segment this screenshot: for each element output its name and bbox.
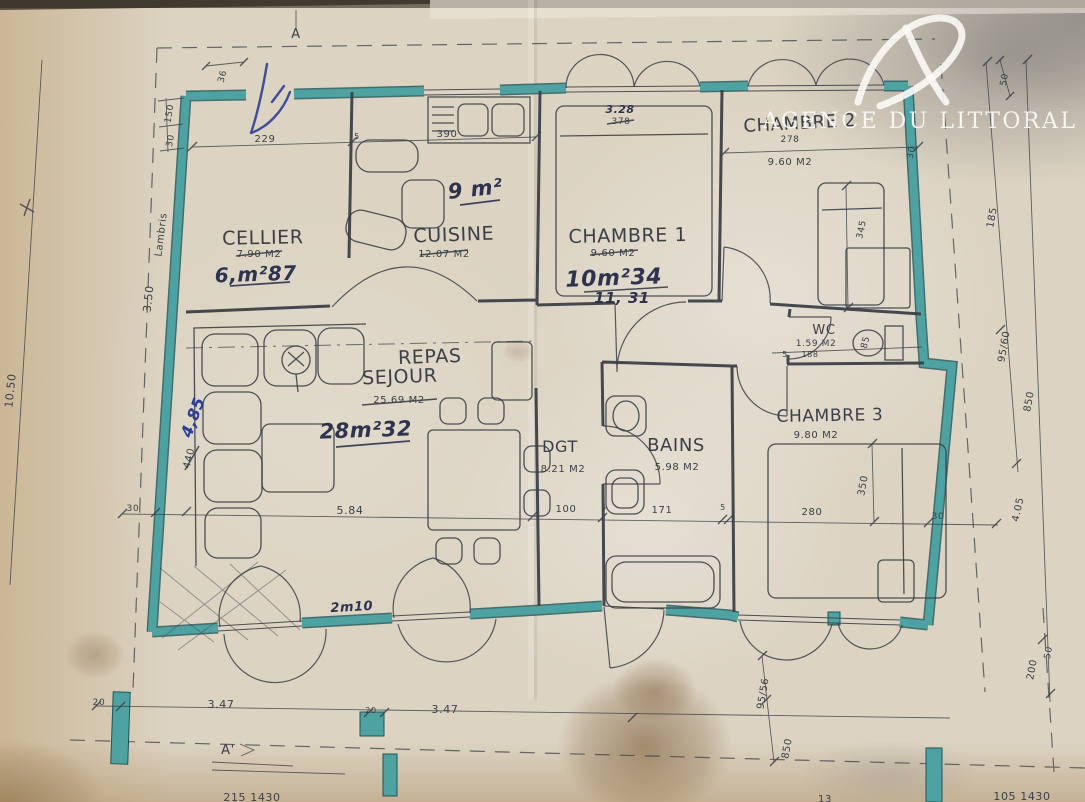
area-sejour-hand: 28m²32 — [319, 416, 412, 443]
area-chambre1-hand-alt: 11, 31 — [594, 289, 650, 307]
dim-2m10-hand: 2m10 — [330, 599, 373, 616]
dim-584: 5.84 — [337, 504, 364, 517]
dim-100: 100 — [556, 504, 577, 515]
area-wc: 1.59 M2 — [796, 339, 837, 349]
room-label-chambre3: CHAMBRE 3 — [776, 405, 883, 427]
post — [360, 712, 384, 736]
dim-229: 229 — [255, 134, 276, 145]
dim-280: 280 — [802, 507, 823, 518]
room-label-chambre1: CHAMBRE 1 — [568, 224, 687, 248]
section-marker-top: A — [291, 27, 301, 42]
area-chambre1-printed: 9.60 M2 — [591, 248, 636, 259]
area-chambre3: 9.80 M2 — [794, 430, 839, 441]
post — [926, 748, 942, 802]
dim-5-wc: 5 — [782, 350, 788, 359]
dim-wc-width: 188 — [801, 350, 818, 359]
area-dgt: 8.21 M2 — [541, 464, 586, 475]
dim-5-top: 5 — [354, 132, 360, 141]
room-label-sejour: SEJOUR — [362, 365, 438, 390]
room-label-cellier: CELLIER — [222, 226, 304, 249]
dim-5-a: 5 — [601, 503, 607, 512]
fragment-2: 105 1430 — [993, 790, 1050, 802]
room-label-dgt: DGT — [542, 437, 578, 456]
fragment-3: 13 — [818, 794, 832, 802]
dim-5-b: 5 — [720, 503, 726, 512]
dim-20-b: 20 — [365, 706, 376, 715]
room-label-wc: WC — [812, 323, 835, 338]
dim-390: 390 — [437, 129, 458, 140]
post — [383, 754, 397, 796]
dim-chambre2-width: 278 — [781, 135, 800, 145]
dim-347-b: 3.47 — [432, 703, 459, 716]
area-sejour-printed: 25.69 M2 — [373, 395, 425, 406]
room-label-cuisine: CUISINE — [413, 223, 495, 248]
dim-171: 171 — [652, 505, 673, 516]
dim-20-a: 20 — [93, 698, 106, 708]
area-cellier-hand: 6,m²87 — [214, 261, 297, 288]
area-chambre2: 9.60 M2 — [768, 157, 813, 168]
agency-name: AGENCE DU LITTORAL — [762, 109, 1078, 134]
dim-30-midleft: 30 — [127, 504, 140, 514]
area-cuisine-printed: 12.07 M2 — [418, 249, 470, 260]
dim-347-a: 3.47 — [208, 698, 235, 711]
post — [111, 692, 131, 765]
room-label-bains: BAINS — [647, 435, 705, 456]
area-cellier-printed: 7.90 M2 — [237, 249, 282, 260]
floor-plan-photo: CELLIER 7.90 M2 6,m²87 CUISINE 12.07 M2 … — [0, 0, 1085, 802]
area-bains: 5.98 M2 — [655, 462, 700, 473]
fragment-1: 215 1430 — [223, 791, 280, 802]
dim-30-midright: 30 — [932, 512, 945, 522]
section-marker-bottom: A' — [221, 743, 235, 758]
dim-chambre1-printed: 378 — [612, 117, 631, 127]
dim-chambre1-hand: 3.28 — [605, 103, 634, 116]
